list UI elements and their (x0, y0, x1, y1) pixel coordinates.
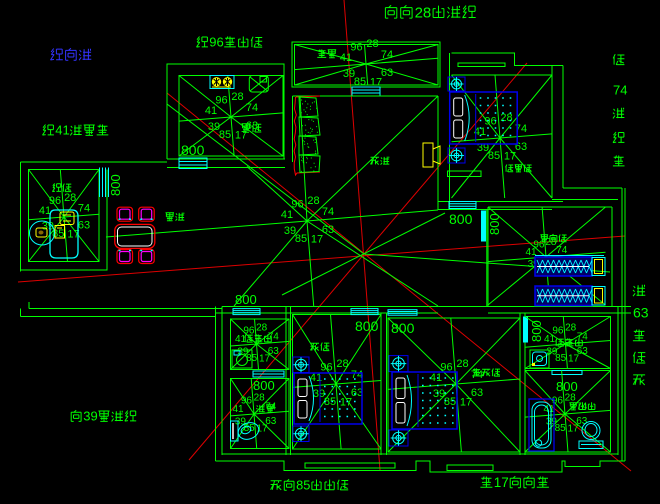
svg-text:41: 41 (55, 123, 69, 138)
svg-text:39: 39 (83, 409, 97, 424)
svg-text:63: 63 (381, 67, 393, 79)
svg-text:17: 17 (504, 150, 516, 162)
svg-text:17: 17 (259, 354, 271, 365)
svg-text:74: 74 (246, 102, 258, 114)
svg-text:17: 17 (235, 129, 247, 141)
svg-text:74: 74 (381, 49, 393, 61)
svg-text:17: 17 (370, 76, 382, 88)
svg-text:17: 17 (567, 424, 579, 435)
svg-text:96: 96 (350, 41, 362, 53)
svg-text:28: 28 (307, 195, 319, 207)
svg-text:41: 41 (430, 372, 442, 384)
svg-text:63: 63 (322, 224, 334, 236)
svg-text:85: 85 (219, 129, 231, 141)
svg-text:85: 85 (555, 353, 567, 364)
svg-text:85: 85 (354, 76, 366, 88)
svg-text:74: 74 (268, 332, 280, 343)
svg-text:74: 74 (613, 83, 627, 98)
svg-text:74: 74 (322, 206, 334, 218)
svg-text:28: 28 (64, 192, 76, 204)
svg-text:28: 28 (256, 323, 268, 334)
svg-text:85: 85 (295, 233, 307, 245)
svg-text:800: 800 (556, 379, 578, 394)
svg-text:85: 85 (488, 150, 500, 162)
svg-text:96: 96 (215, 94, 227, 106)
svg-text:74: 74 (556, 245, 568, 256)
svg-text:74: 74 (78, 202, 90, 214)
svg-text:28: 28 (254, 393, 266, 404)
svg-text:800: 800 (253, 378, 275, 393)
svg-text:28: 28 (366, 38, 378, 50)
svg-text:96: 96 (291, 198, 303, 210)
svg-text:63: 63 (78, 219, 90, 231)
svg-text:800: 800 (449, 211, 473, 227)
svg-text:800: 800 (181, 142, 205, 158)
svg-text:96: 96 (209, 35, 223, 50)
svg-text:800: 800 (355, 318, 379, 334)
svg-text:63: 63 (633, 305, 649, 321)
svg-text:41: 41 (232, 404, 244, 415)
svg-text:17: 17 (568, 354, 580, 365)
svg-text:28: 28 (231, 91, 243, 103)
svg-text:85: 85 (555, 423, 567, 434)
svg-text:28: 28 (415, 4, 432, 21)
svg-text:41: 41 (39, 205, 51, 217)
svg-text:800: 800 (529, 320, 544, 342)
svg-text:800: 800 (108, 174, 123, 196)
svg-text:17: 17 (460, 396, 472, 408)
svg-text:800: 800 (391, 320, 415, 336)
svg-text:41: 41 (281, 209, 293, 221)
svg-text:85: 85 (296, 478, 310, 493)
svg-text:17: 17 (311, 233, 323, 245)
svg-text:85: 85 (444, 396, 456, 408)
svg-text:41: 41 (544, 334, 556, 345)
svg-text:28: 28 (565, 323, 577, 334)
svg-text:800: 800 (235, 292, 257, 307)
svg-text:17: 17 (494, 475, 509, 490)
svg-text:41: 41 (340, 52, 352, 64)
svg-text:28: 28 (336, 358, 348, 370)
svg-text:96: 96 (320, 361, 332, 373)
svg-text:28: 28 (565, 393, 577, 404)
svg-text:63: 63 (471, 387, 483, 399)
svg-text:17: 17 (340, 396, 352, 408)
svg-text:41: 41 (205, 105, 217, 117)
svg-text:85: 85 (324, 396, 336, 408)
svg-text:28: 28 (456, 358, 468, 370)
